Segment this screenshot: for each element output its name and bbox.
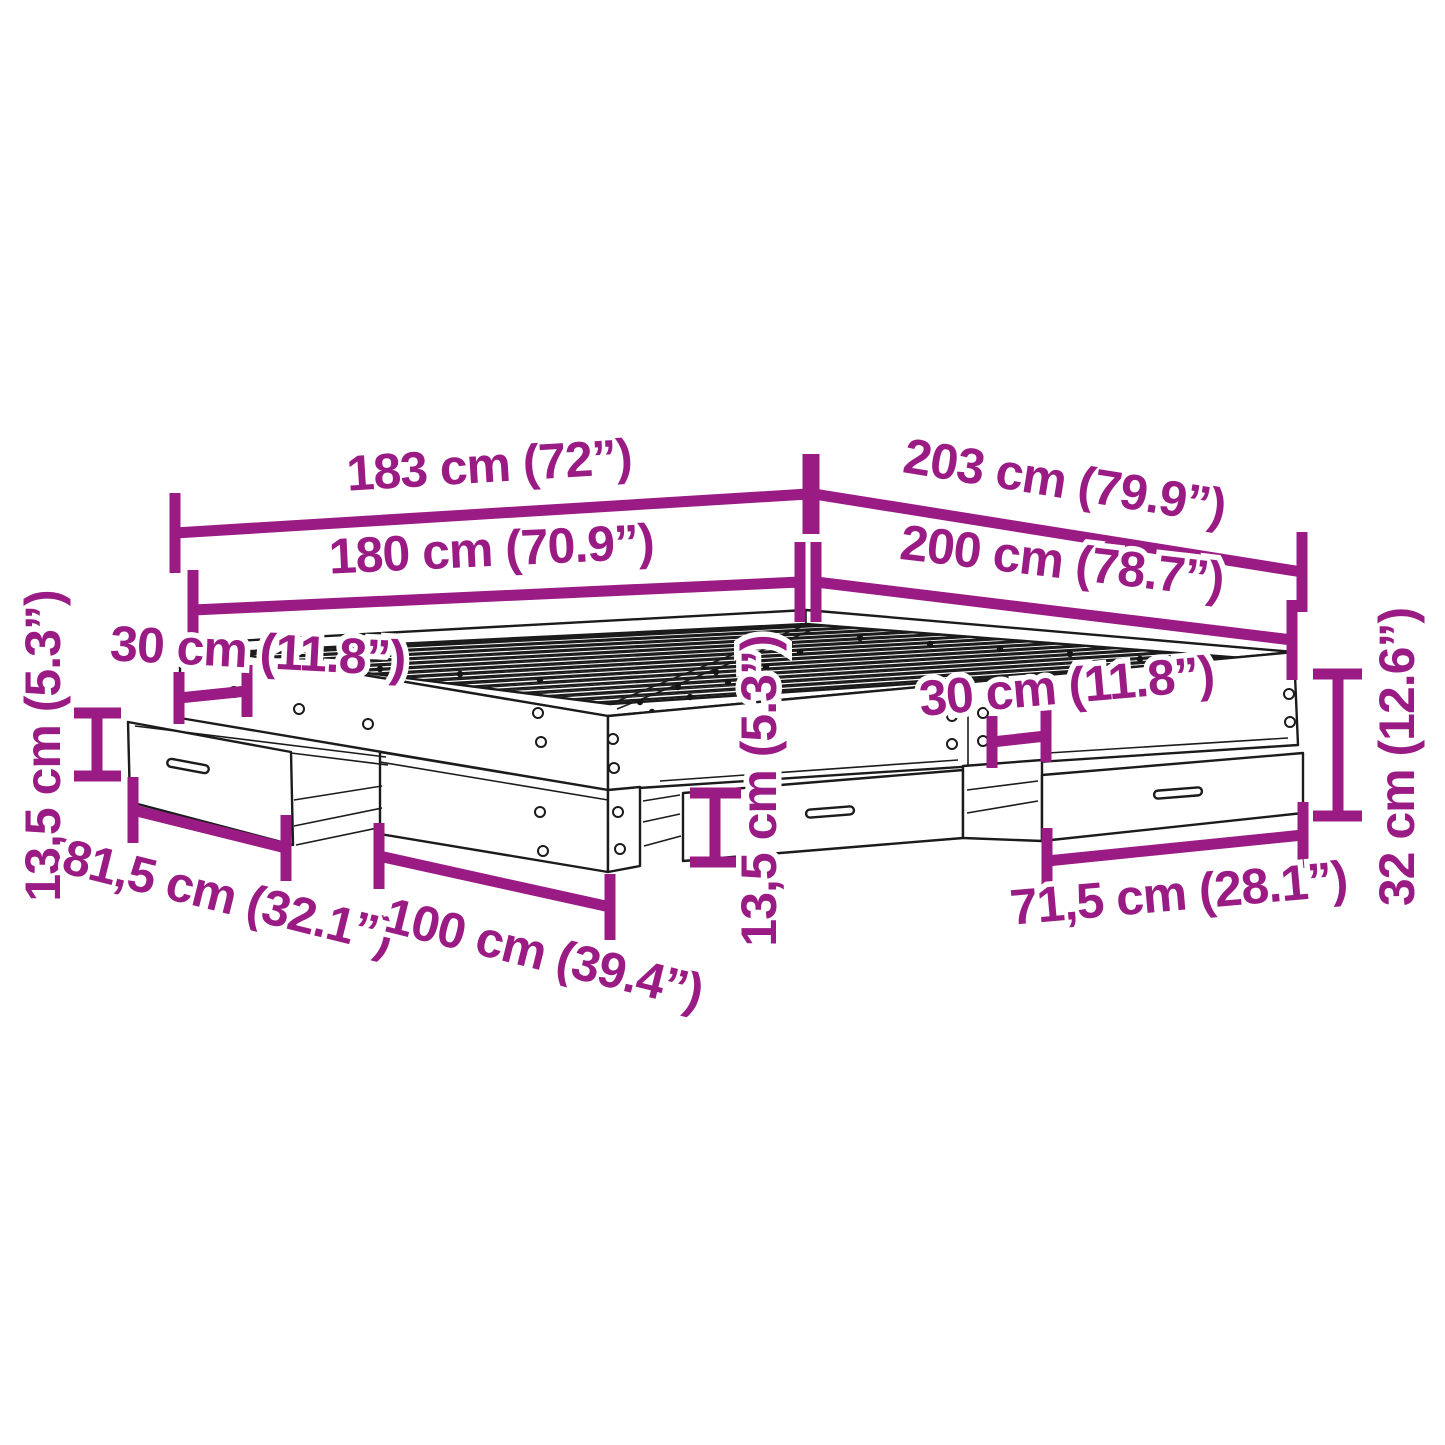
dimension-diagram: 183 cm (72”) 203 cm (79.9”) 180 cm (70.9… <box>0 0 1445 1445</box>
dim-label-side-panel: 100 cm (39.4”) <box>380 887 709 1020</box>
dim-label-drawer-height-center: 13,5 cm (5.3”) <box>731 635 787 946</box>
dim-label-drawer-front-left: 81,5 cm (32.1”) <box>57 828 398 964</box>
front-mid-post <box>963 760 1042 841</box>
dim-label-outer-width: 183 cm (72”) <box>345 428 633 501</box>
diagram-canvas: 183 cm (72”) 203 cm (79.9”) 180 cm (70.9… <box>0 0 1445 1445</box>
dim-bracket-drawer-height-left <box>74 713 121 776</box>
front-corner-post <box>608 787 640 872</box>
dim-label-drawer-height-left: 13,5 cm (5.3”) <box>15 590 71 901</box>
dim-label-frame-height: 32 cm (12.6”) <box>1369 608 1425 906</box>
dim-bracket-frame-height <box>1313 674 1362 816</box>
dim-label-offset-left: 30 cm (11.8”) <box>109 615 407 686</box>
left-drawer-glides <box>294 786 382 845</box>
